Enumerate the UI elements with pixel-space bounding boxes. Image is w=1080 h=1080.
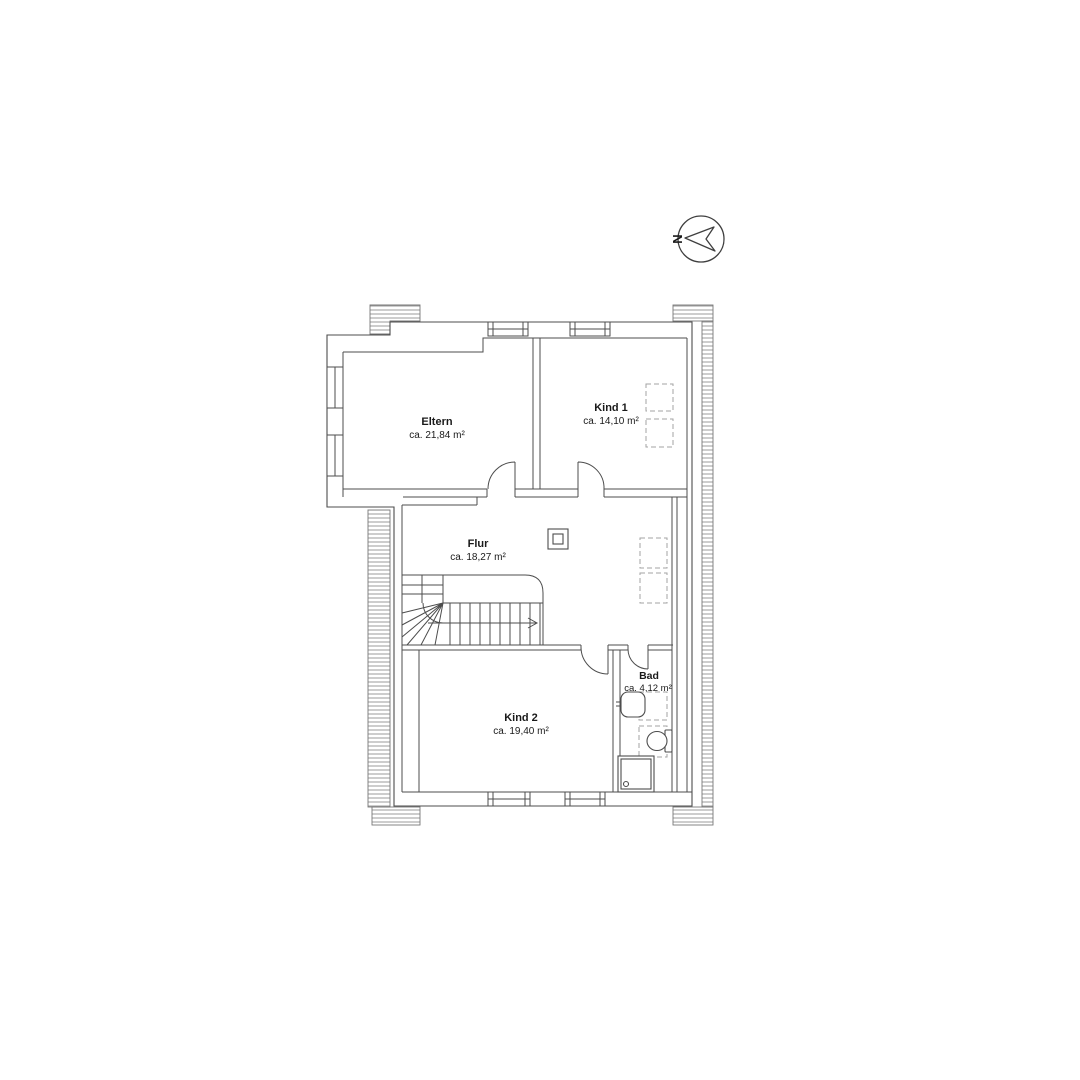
stair-upper-treads [402,575,443,603]
shower-icon [618,756,654,792]
door-jambs-lower [581,645,648,650]
room-name-flur: Flur [468,538,489,550]
room-area-bad: ca. 4,12 m² [624,683,672,694]
stair-straight-treads [450,603,540,645]
staircase [402,575,543,645]
room-label-bad: Bad ca. 4,12 m² [624,670,672,694]
doors [488,462,648,674]
toilet-icon [647,730,672,752]
door-kind2 [581,647,608,674]
roof-hatch-bottom-left [372,807,420,825]
window-left-2 [327,435,343,476]
room-area-eltern: ca. 21,84 m² [409,430,465,441]
bath-fixtures [616,692,672,792]
wall-eltern-kind1 [533,338,540,489]
flur-top-inner [402,497,687,505]
stair-winder-treads [402,603,443,645]
room-name-bad: Bad [639,670,659,682]
door-jambs-upper [487,489,604,497]
window-top-1 [488,322,528,336]
roof-hatch-bottom-right [673,807,713,825]
north-arrow: N [670,216,724,262]
room-area-kind2: ca. 19,40 m² [493,726,549,737]
eltern-top-inner [343,338,533,352]
room-name-kind2: Kind 2 [504,712,538,724]
window-bottom-2 [565,792,605,806]
chimney-hatch [370,305,420,334]
stair-direction-arrow [428,618,537,628]
room-label-eltern: Eltern ca. 21,84 m² [409,416,465,441]
dashed-box-flur-2 [640,573,667,603]
dashed-box-kind1-2 [646,419,673,447]
dashed-box-kind1-1 [646,384,673,411]
room-label-flur: Flur ca. 18,27 m² [450,538,506,563]
door-eltern [488,462,515,489]
room-area-flur: ca. 18,27 m² [450,552,506,563]
floor-plan-page: N [0,0,1080,1080]
north-arrow-pointer [685,227,715,251]
roof-hatch-right-strip [702,321,713,807]
room-label-kind1: Kind 1 ca. 14,10 m² [583,402,639,427]
chimney-symbol [548,529,568,549]
window-top-2 [570,322,610,336]
room-name-kind1: Kind 1 [594,402,628,414]
door-bad [628,649,648,669]
roof-hatch-left-strip [368,510,390,807]
roof-hatch-top-right [673,305,713,321]
window-left-1 [327,367,343,408]
window-bottom-1 [488,792,530,806]
north-label: N [670,234,685,243]
door-kind1 [578,462,604,489]
dashed-box-flur-1 [640,538,667,568]
room-area-kind1: ca. 14,10 m² [583,416,639,427]
floor-plan-drawing: N [0,0,1080,1080]
room-label-kind2: Kind 2 ca. 19,40 m² [493,712,549,737]
room-name-eltern: Eltern [421,416,452,428]
